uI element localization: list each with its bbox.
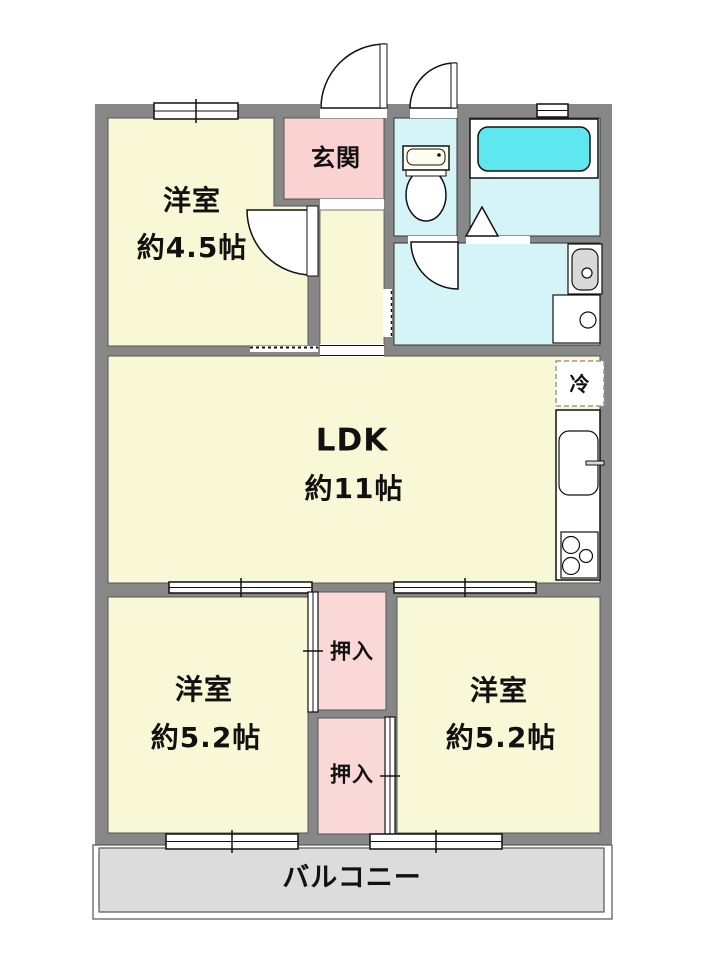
entrance-door-arc xyxy=(320,44,387,118)
balcony-window-left xyxy=(166,830,298,853)
floor-plan: 洋室 約4.5帖 玄関 LDK 約11帖 冷 洋室 約5.2帖 洋室 約5.2帖… xyxy=(0,0,716,960)
room-western-2 xyxy=(108,597,308,833)
label-western-room-3-size: 約5.2帖 xyxy=(446,724,557,752)
dashed-wall-marker xyxy=(250,346,318,354)
balcony-window-right xyxy=(370,830,502,853)
label-western-room-3: 洋室 xyxy=(470,677,528,705)
label-closet-2: 押入 xyxy=(330,765,374,786)
kitchen-sink-icon xyxy=(559,431,604,495)
label-western-room-1: 洋室 xyxy=(163,187,221,215)
label-western-room-2: 洋室 xyxy=(175,676,233,704)
window-bath xyxy=(537,104,568,117)
toilet-door-arc xyxy=(410,63,457,118)
label-western-room-2-size: 約5.2帖 xyxy=(151,724,262,752)
label-refrigerator: 冷 xyxy=(570,374,591,394)
washroom-wall-dashes xyxy=(383,289,392,337)
toilet-icon xyxy=(403,146,449,221)
label-closet-1: 押入 xyxy=(330,642,374,663)
hallway xyxy=(320,210,384,346)
room-western-3 xyxy=(397,597,600,833)
entrance-step xyxy=(320,199,384,211)
washing-machine-pan-icon xyxy=(553,295,600,343)
hallway-ldk-opening xyxy=(320,344,384,357)
room-ldk xyxy=(108,356,600,583)
label-ldk-size: 約11帖 xyxy=(305,475,404,503)
label-entrance: 玄関 xyxy=(311,146,361,170)
label-balcony: バルコニー xyxy=(282,865,421,892)
kitchen-counter xyxy=(556,410,604,580)
label-western-room-1-size: 約4.5帖 xyxy=(137,234,248,262)
stove-icon xyxy=(561,532,598,578)
washbasin-icon xyxy=(568,244,602,294)
bathtub-icon xyxy=(470,119,598,178)
window-room1 xyxy=(154,99,238,123)
label-ldk: LDK xyxy=(316,426,389,457)
